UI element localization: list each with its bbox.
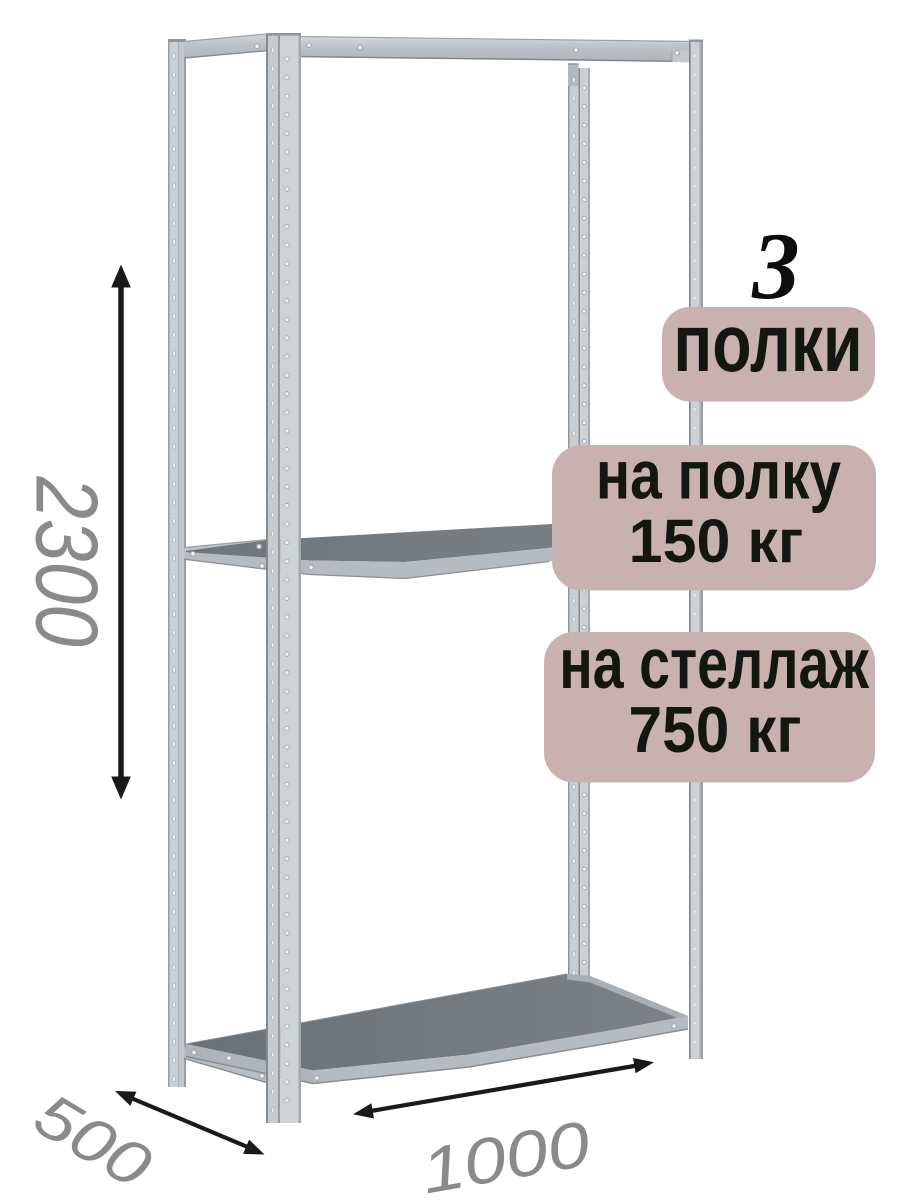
svg-text:150 кг: 150 кг: [629, 507, 804, 575]
svg-text:2300: 2300: [17, 475, 115, 646]
svg-text:на полку: на полку: [596, 437, 841, 513]
svg-text:полки: полки: [673, 296, 862, 388]
svg-text:750 кг: 750 кг: [628, 694, 801, 766]
svg-text:на стеллаж: на стеллаж: [559, 623, 869, 703]
